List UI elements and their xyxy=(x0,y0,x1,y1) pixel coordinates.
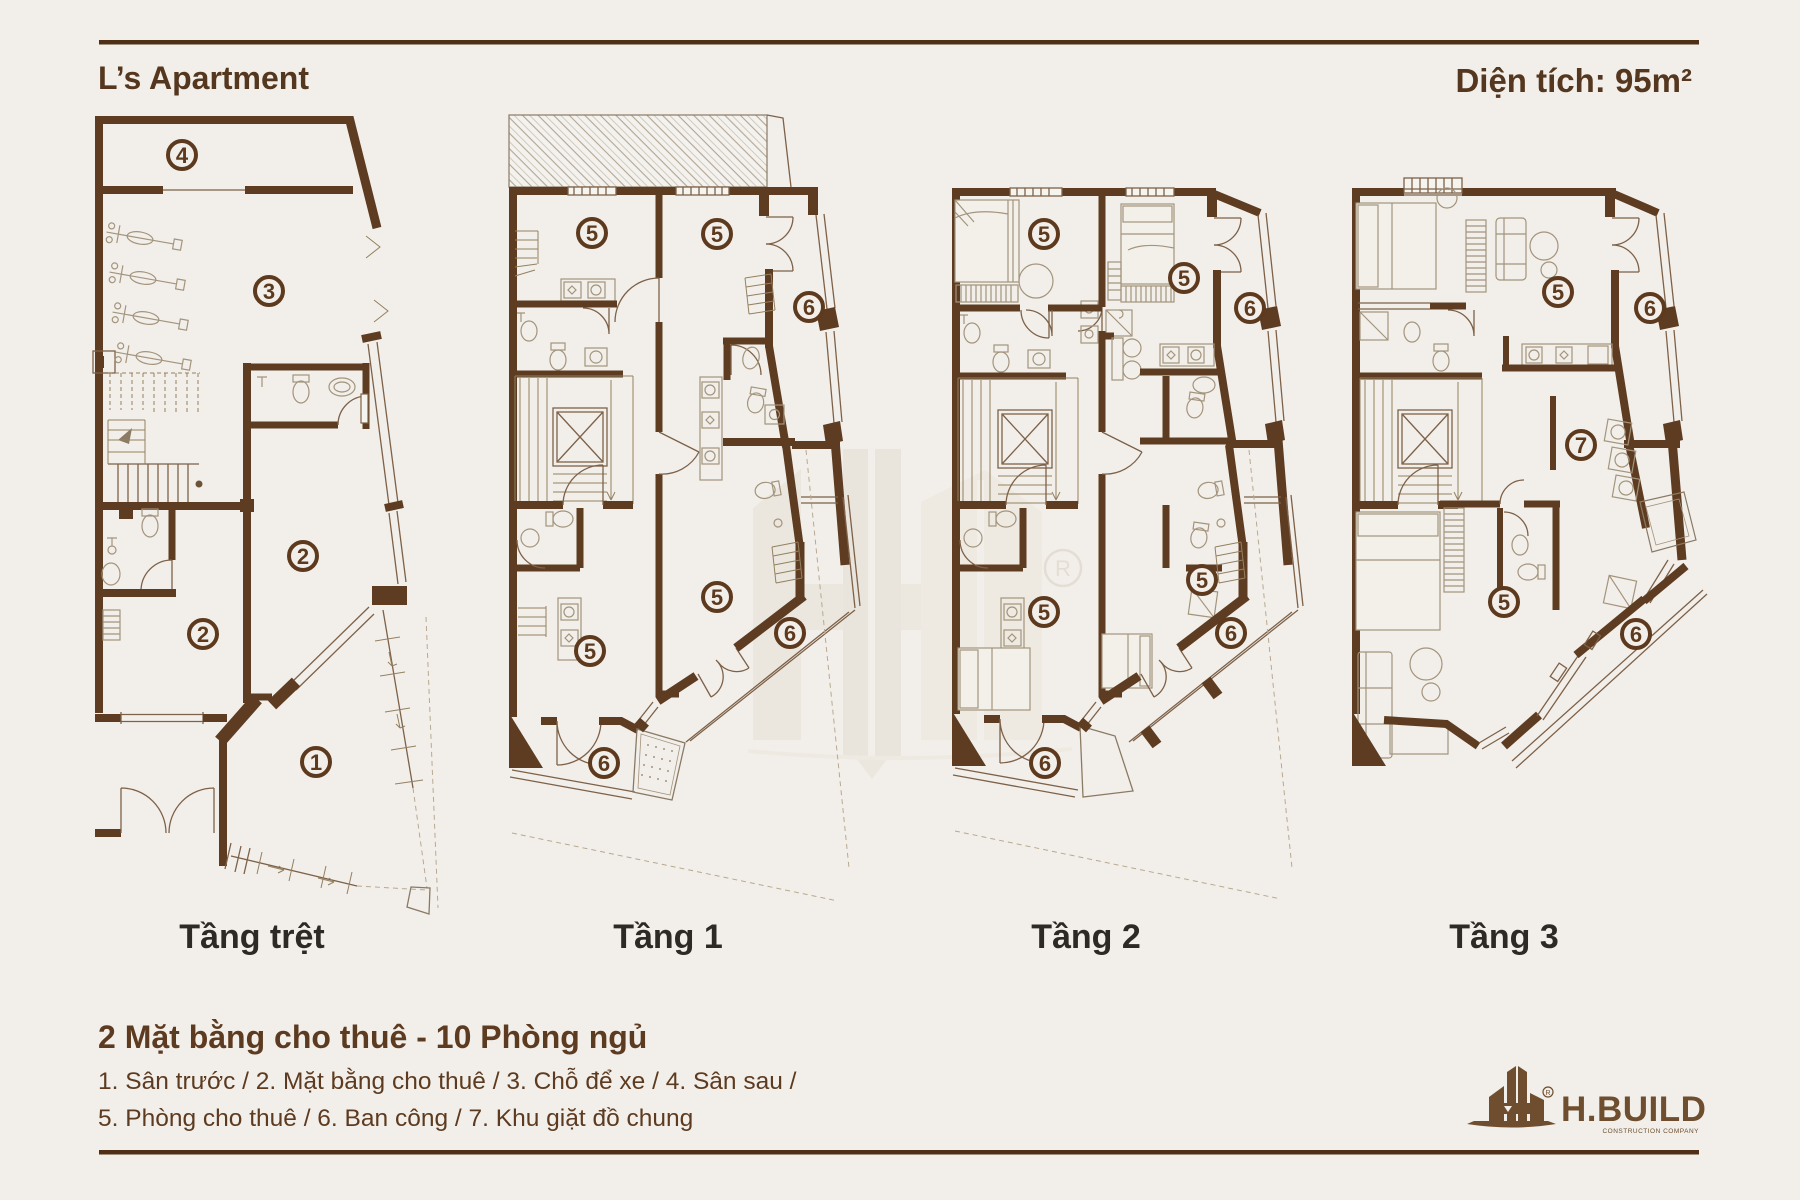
svg-text:7: 7 xyxy=(1575,433,1587,458)
svg-text:1. Sân trước / 2. Mặt bằng cho: 1. Sân trước / 2. Mặt bằng cho thuê / 3.… xyxy=(98,1068,797,1095)
svg-text:R: R xyxy=(1055,556,1071,581)
svg-text:5: 5 xyxy=(1038,600,1050,625)
svg-text:6: 6 xyxy=(1039,751,1051,776)
svg-text:2: 2 xyxy=(197,622,209,647)
svg-text:Tầng 2: Tầng 2 xyxy=(1031,918,1141,956)
svg-text:6: 6 xyxy=(803,295,815,320)
svg-text:5: 5 xyxy=(711,585,723,610)
svg-text:5: 5 xyxy=(711,222,723,247)
svg-text:3: 3 xyxy=(263,279,275,304)
svg-text:5: 5 xyxy=(1038,222,1050,247)
svg-text:5: 5 xyxy=(586,221,598,246)
svg-text:6: 6 xyxy=(784,621,796,646)
svg-text:5: 5 xyxy=(1196,568,1208,593)
svg-text:6: 6 xyxy=(1644,296,1656,321)
svg-text:Tầng 3: Tầng 3 xyxy=(1449,918,1559,956)
svg-text:2 Mặt bằng cho thuê - 10 Phòng: 2 Mặt bằng cho thuê - 10 Phòng ngủ xyxy=(98,1019,647,1055)
svg-text:Tầng trệt: Tầng trệt xyxy=(179,918,324,956)
svg-text:5: 5 xyxy=(1552,280,1564,305)
svg-text:6: 6 xyxy=(1225,621,1237,646)
svg-text:6: 6 xyxy=(1630,622,1642,647)
svg-text:L’s Apartment: L’s Apartment xyxy=(98,60,309,96)
svg-text:6: 6 xyxy=(1244,296,1256,321)
svg-text:5: 5 xyxy=(1178,266,1190,291)
svg-text:Diện tích: 95m²: Diện tích: 95m² xyxy=(1455,62,1692,99)
svg-text:5: 5 xyxy=(584,639,596,664)
svg-text:5. Phòng cho thuê / 6. Ban côn: 5. Phòng cho thuê / 6. Ban công / 7. Khu… xyxy=(98,1105,693,1132)
svg-text:1: 1 xyxy=(310,750,322,775)
svg-text:2: 2 xyxy=(297,544,309,569)
svg-text:R: R xyxy=(1545,1090,1550,1097)
svg-text:H.BUILD: H.BUILD xyxy=(1561,1090,1706,1129)
svg-text:Tầng 1: Tầng 1 xyxy=(613,918,723,956)
svg-text:CONSTRUCTION COMPANY: CONSTRUCTION COMPANY xyxy=(1602,1128,1699,1135)
svg-text:4: 4 xyxy=(176,143,189,168)
svg-text:6: 6 xyxy=(598,751,610,776)
svg-text:5: 5 xyxy=(1498,590,1510,615)
